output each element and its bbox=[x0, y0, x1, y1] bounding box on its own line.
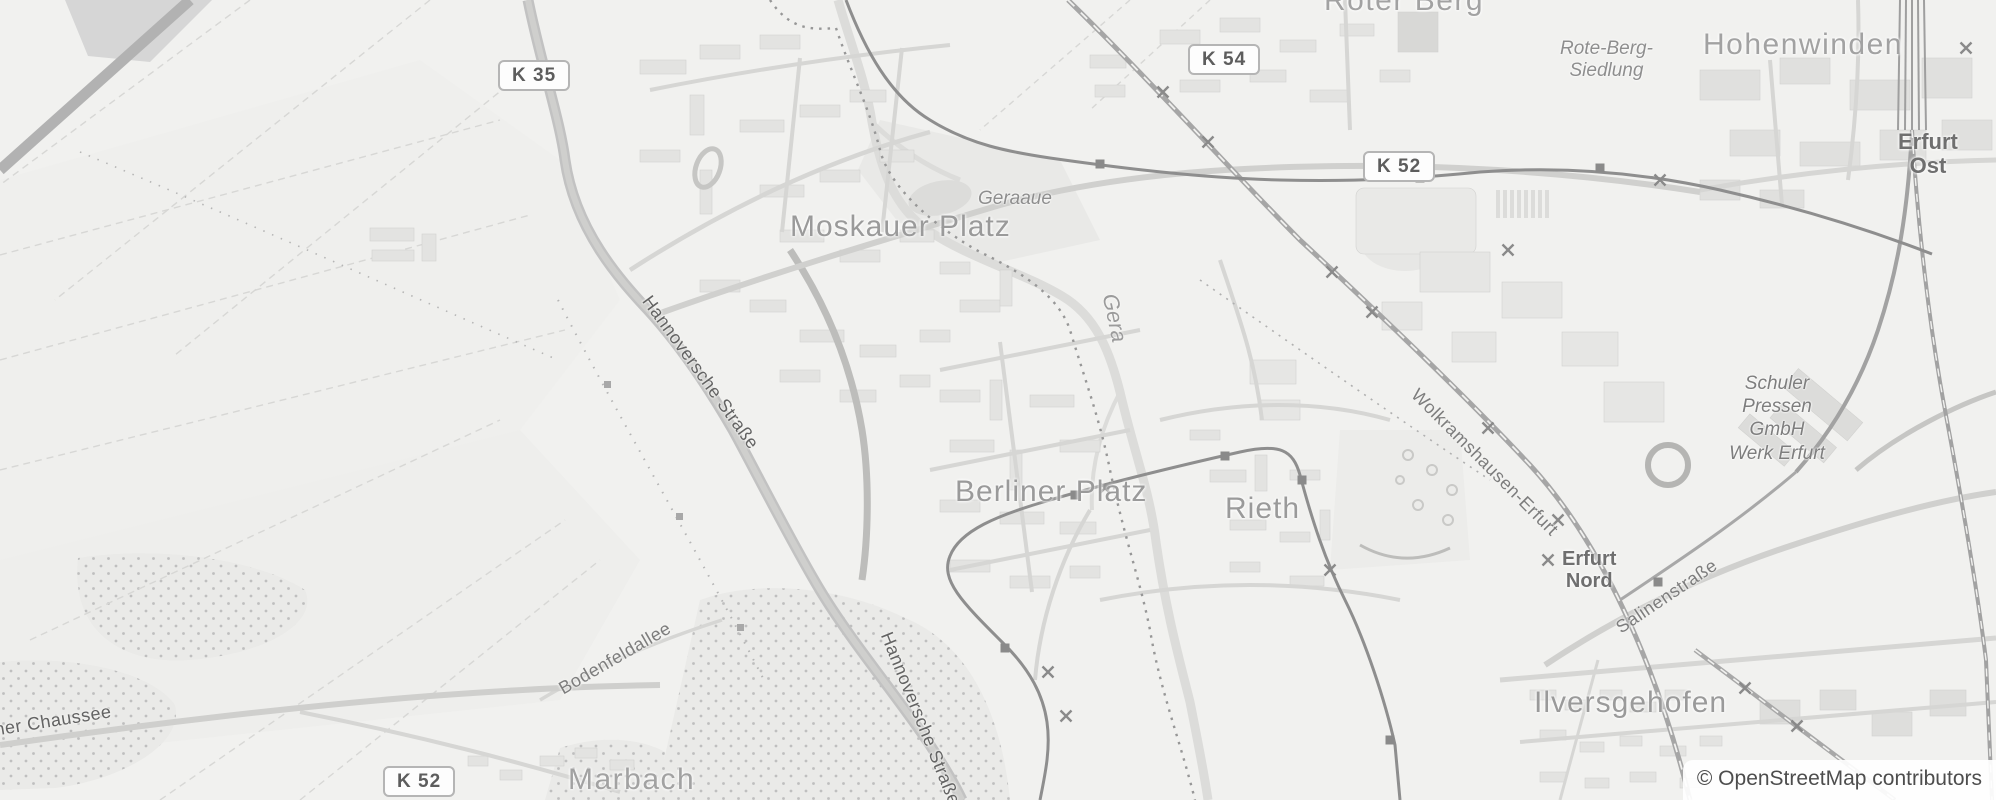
road-badge-k54: K 54 bbox=[1188, 44, 1260, 75]
attribution-bar: © OpenStreetMap contributors bbox=[1683, 760, 1996, 800]
road-badge-k52-north: K 52 bbox=[1363, 151, 1435, 182]
road-badge-k35: K 35 bbox=[498, 60, 570, 91]
map-viewport[interactable]: Roter Berg Rote-Berg- Siedlung Hohenwind… bbox=[0, 0, 1996, 800]
osm-attribution-link[interactable]: © OpenStreetMap contributors bbox=[1697, 767, 1982, 790]
road-badge-k52-south: K 52 bbox=[383, 766, 455, 797]
map-canvas bbox=[0, 0, 1996, 800]
